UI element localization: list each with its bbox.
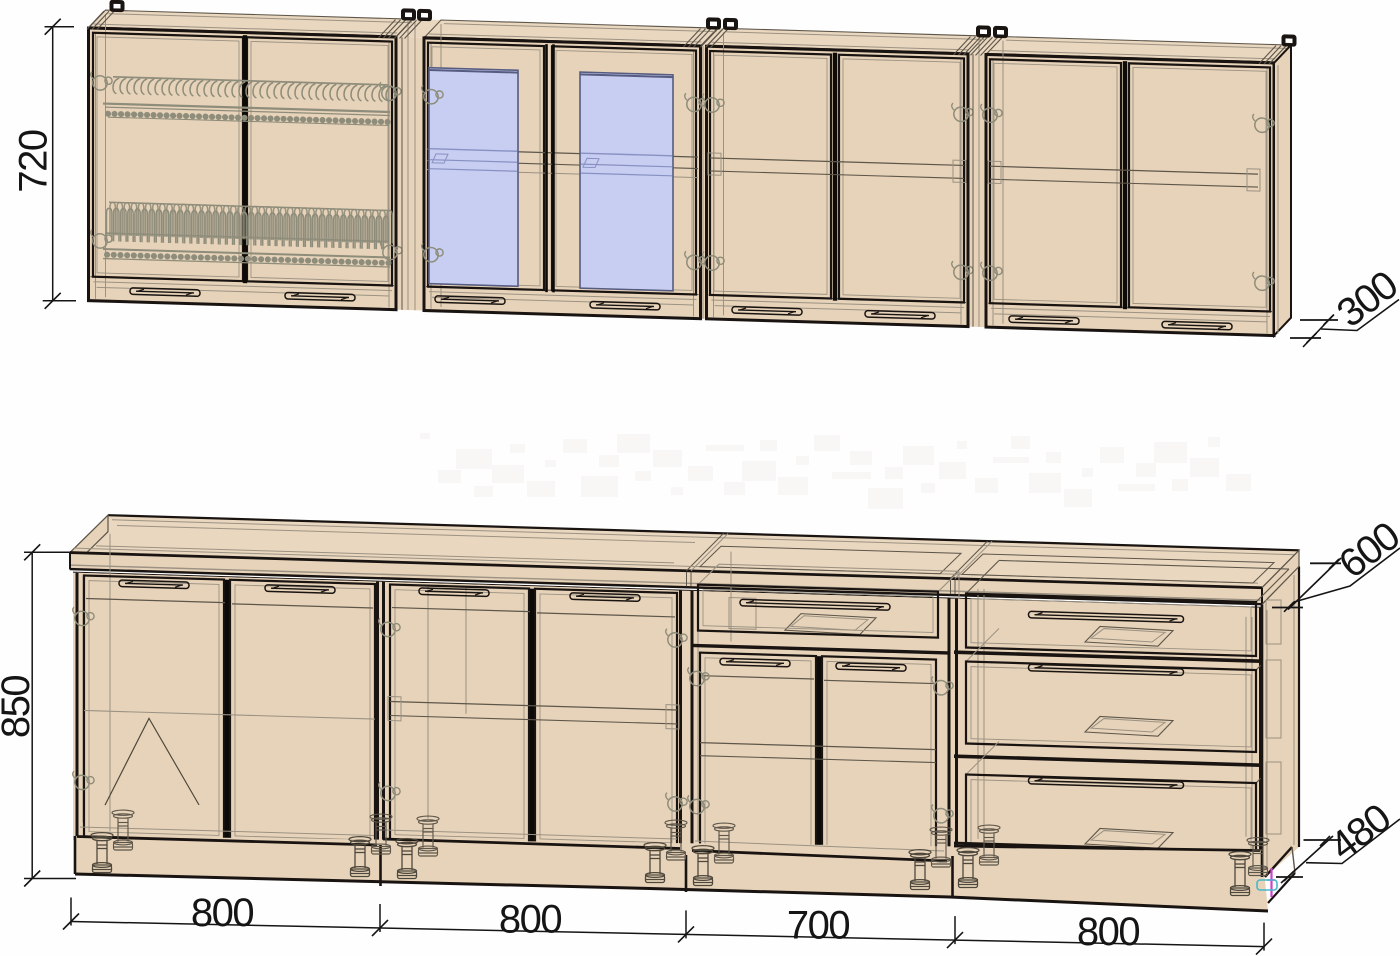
svg-text:700: 700 (787, 904, 849, 948)
svg-text:850: 850 (0, 676, 38, 738)
svg-text:720: 720 (12, 130, 56, 192)
svg-text:800: 800 (499, 898, 561, 942)
svg-text:800: 800 (1077, 910, 1139, 954)
svg-text:800: 800 (191, 891, 253, 935)
